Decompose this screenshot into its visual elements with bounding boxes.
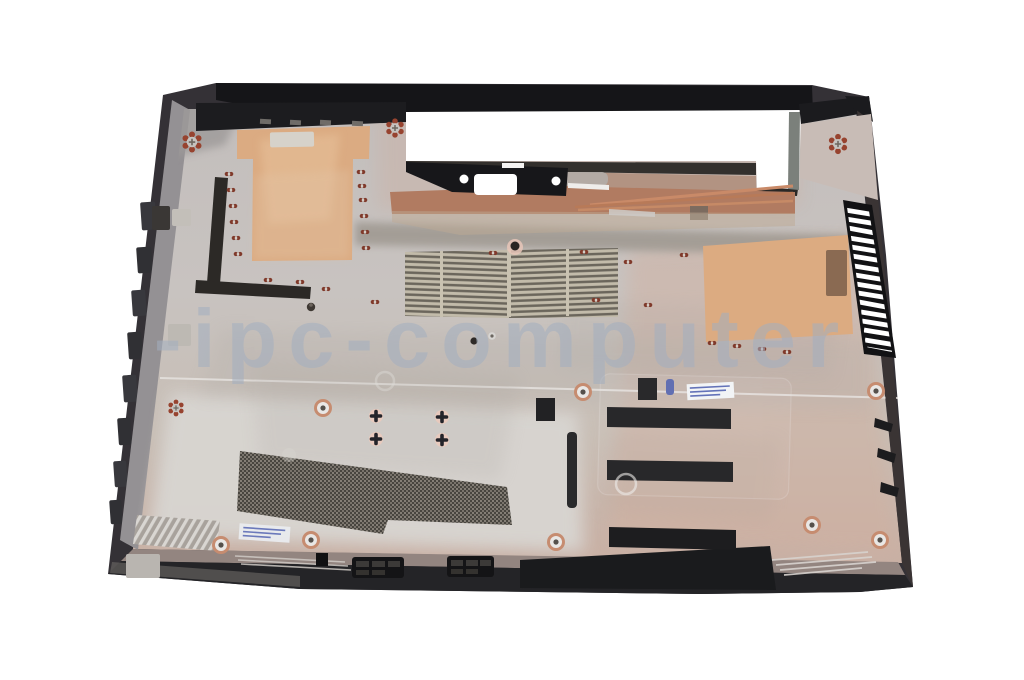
svg-text:-ipc-computer: -ipc-computer	[154, 292, 850, 385]
